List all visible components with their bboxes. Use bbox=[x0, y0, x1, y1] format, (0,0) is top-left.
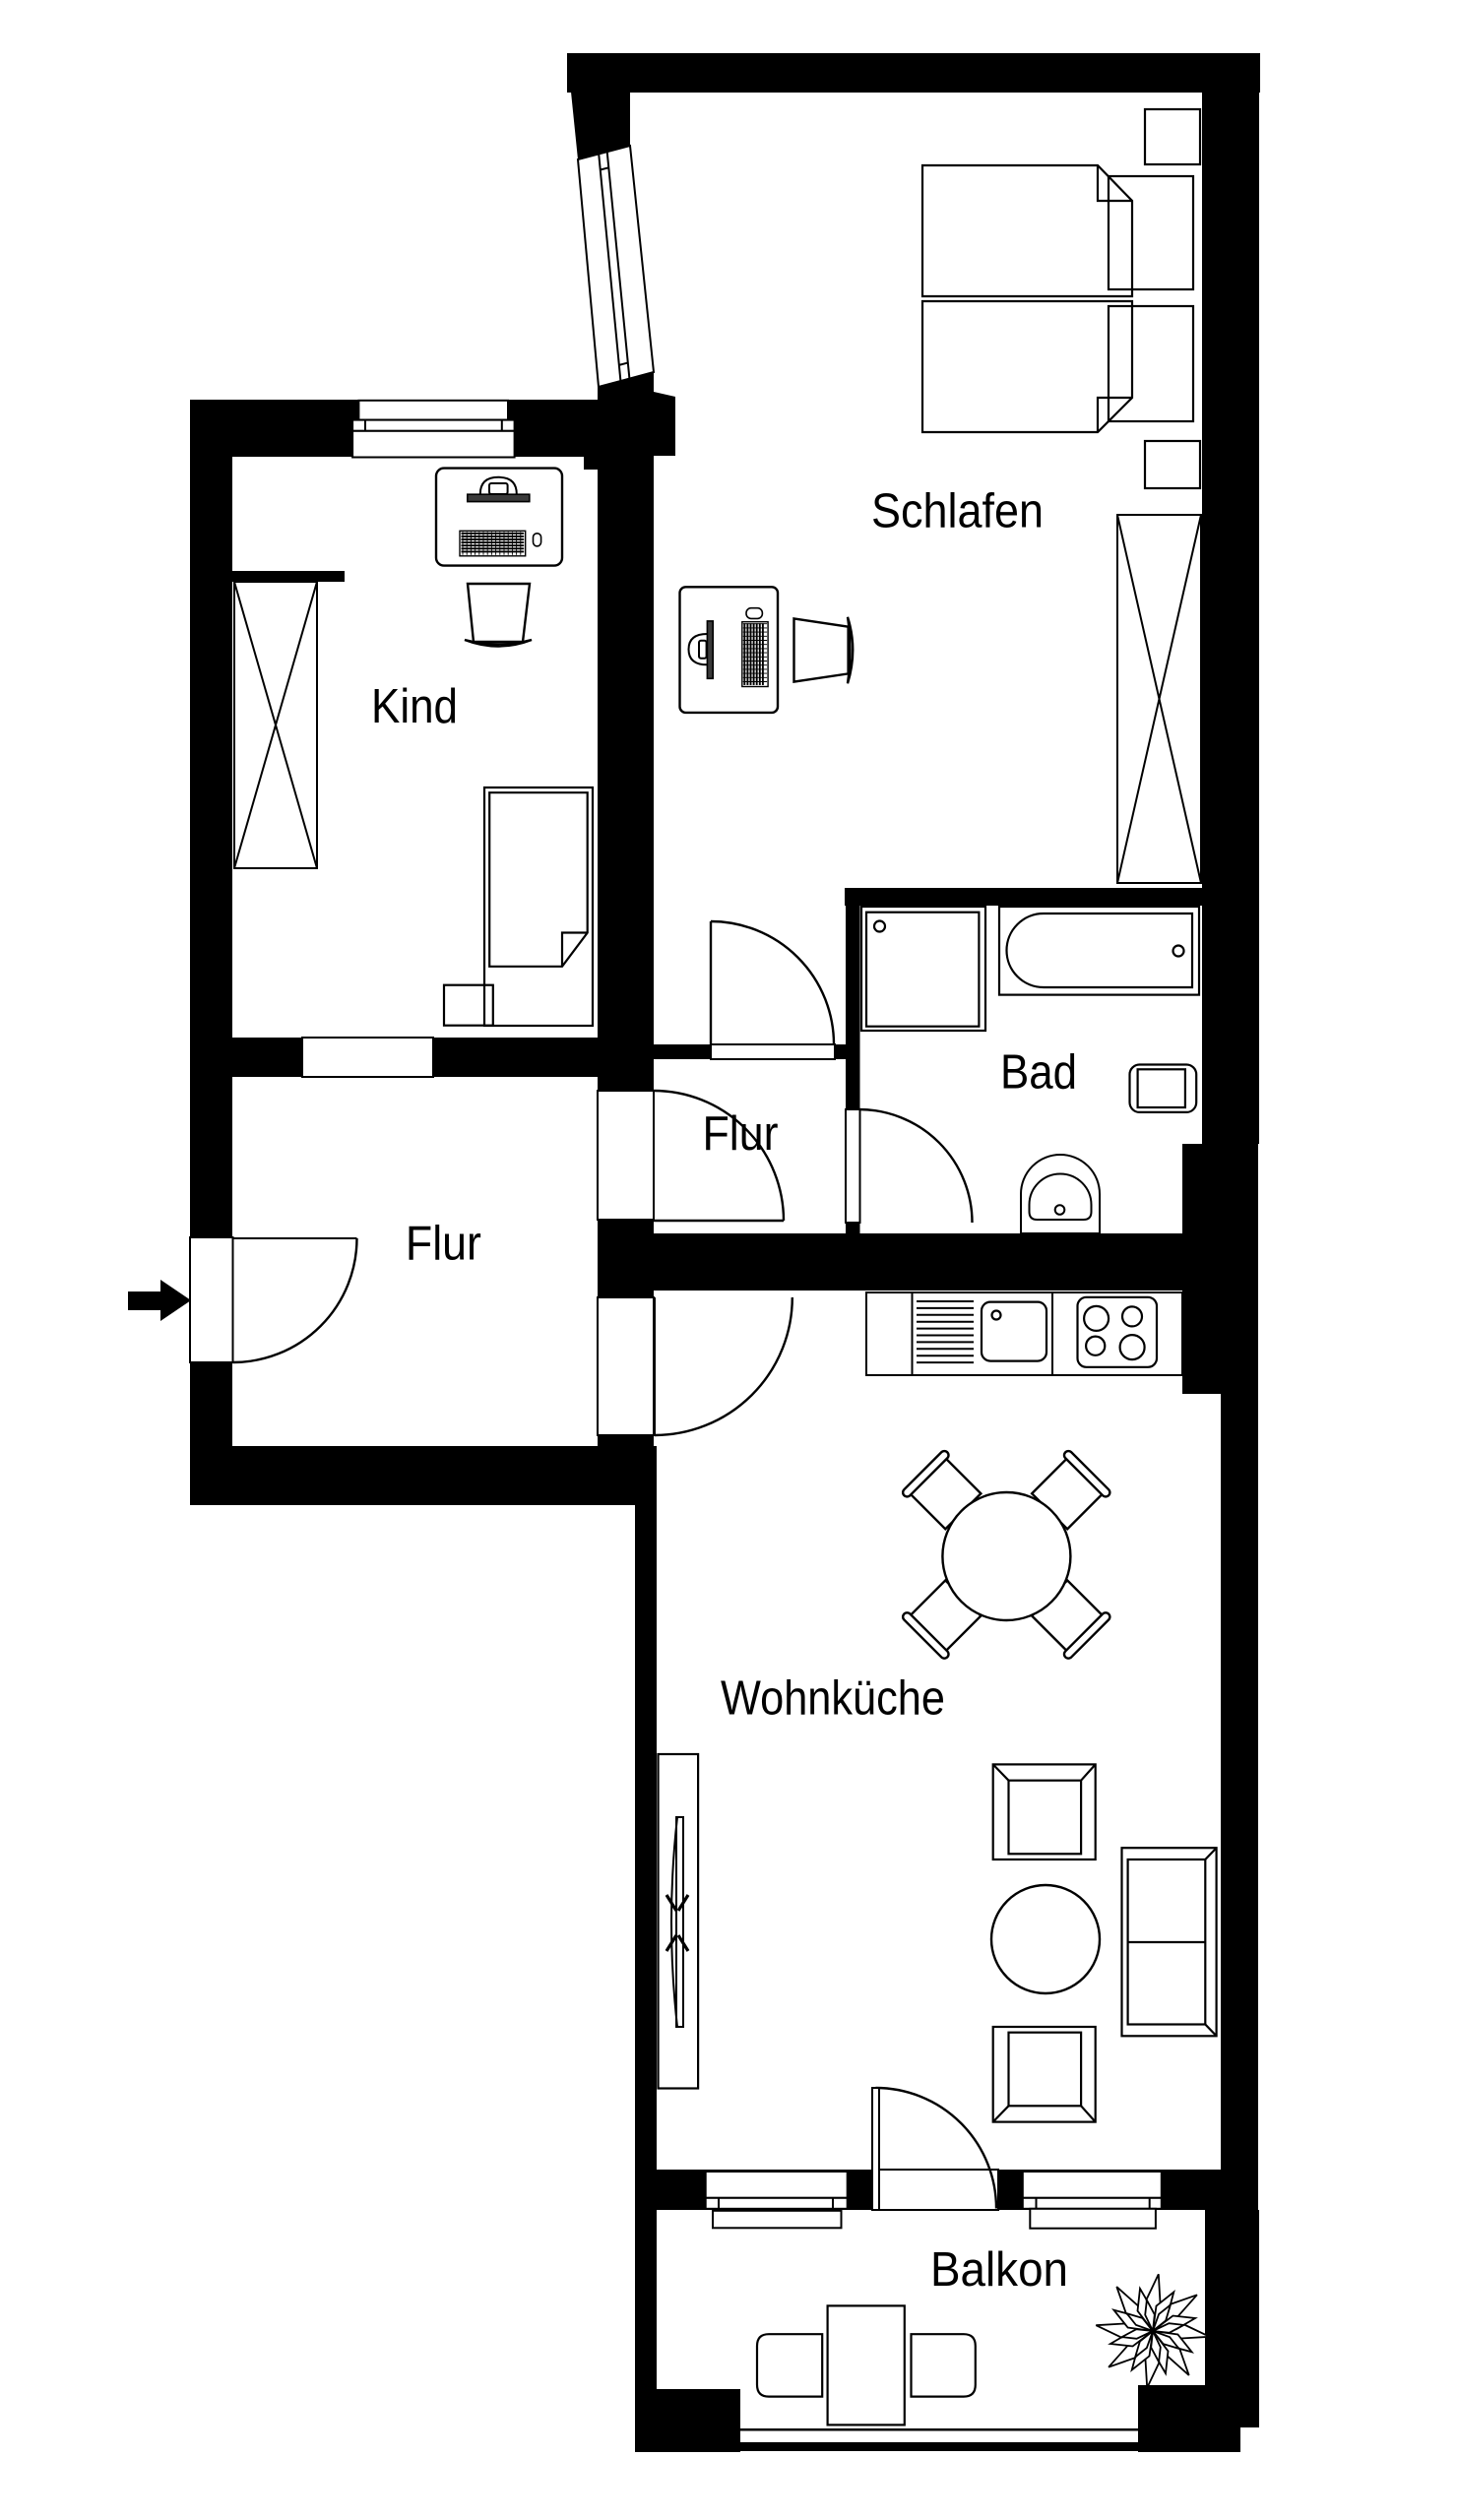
svg-text:Wohnküche: Wohnküche bbox=[721, 1671, 945, 1726]
svg-text:Bad: Bad bbox=[1000, 1045, 1077, 1100]
svg-text:Schlafen: Schlafen bbox=[871, 484, 1044, 538]
svg-text:Flur: Flur bbox=[703, 1106, 779, 1161]
svg-text:Balkon: Balkon bbox=[930, 2242, 1068, 2297]
svg-text:Flur: Flur bbox=[406, 1217, 481, 1271]
svg-text:Kind: Kind bbox=[371, 679, 458, 733]
